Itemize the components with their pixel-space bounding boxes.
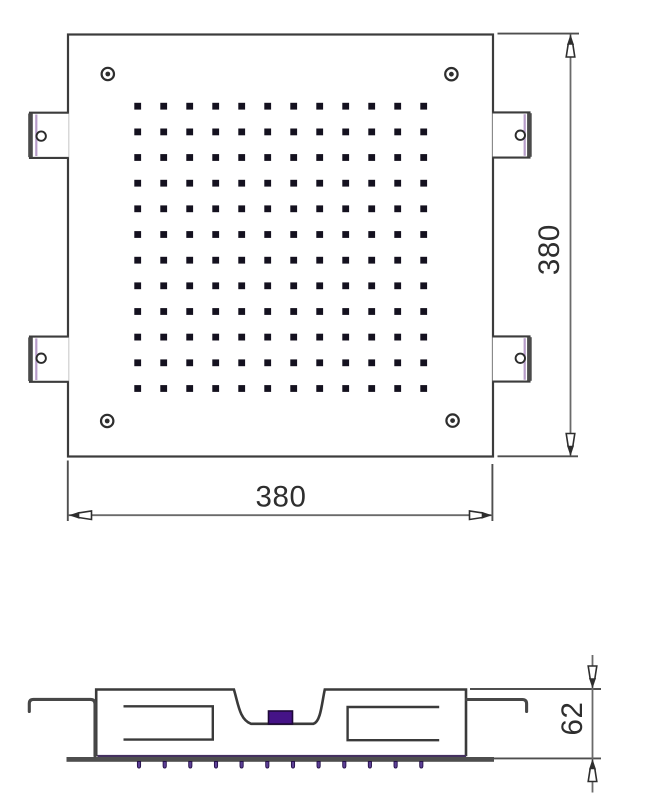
svg-text:380: 380 <box>255 481 306 514</box>
svg-text:62: 62 <box>556 701 589 735</box>
svg-text:380: 380 <box>533 224 566 275</box>
